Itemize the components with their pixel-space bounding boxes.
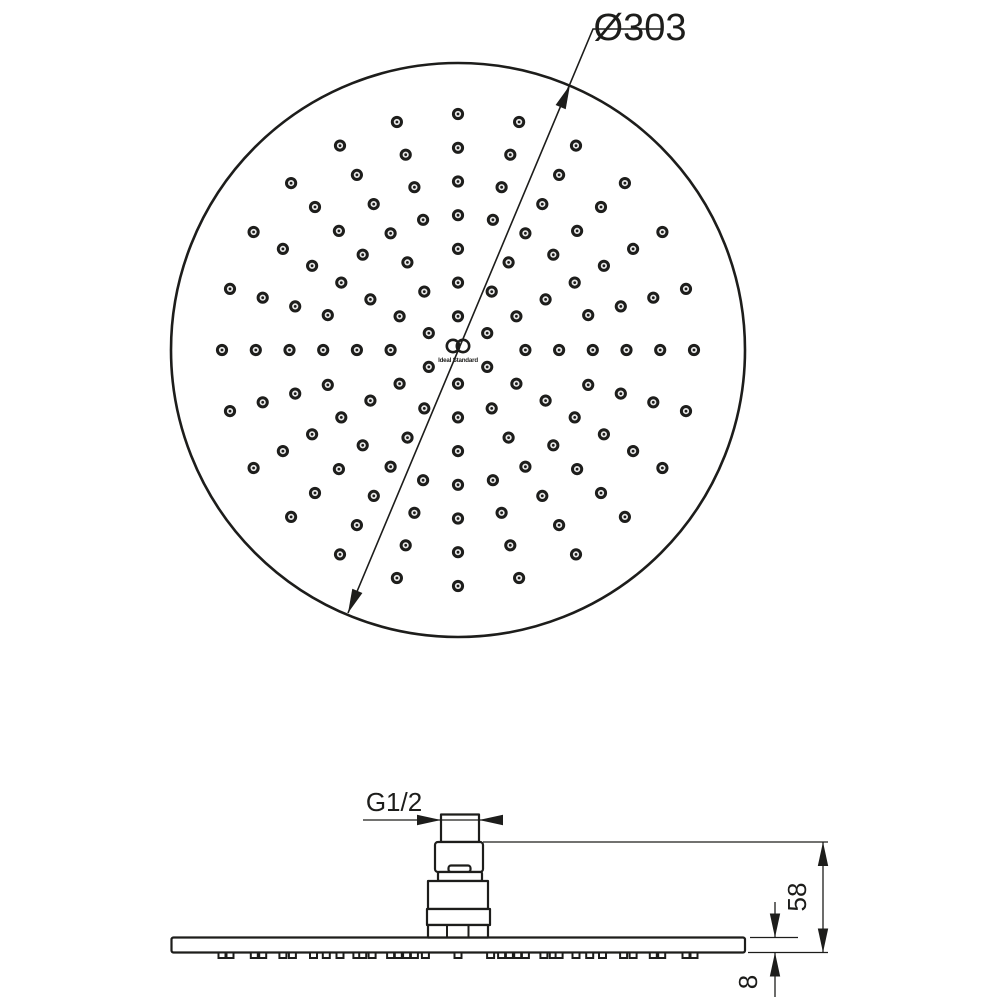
nozzle-dot-core	[457, 146, 460, 149]
thread-pipe	[441, 815, 479, 843]
nozzle-dot-core	[457, 517, 460, 520]
side-nozzle	[573, 953, 580, 959]
nozzle-dot-core	[290, 182, 293, 185]
thickness-label: 8	[733, 975, 763, 989]
nozzle-dot-core	[422, 479, 425, 482]
nozzle-dot-core	[314, 206, 317, 209]
joint-body-lower	[427, 909, 490, 925]
nozzle-dot-core	[573, 416, 576, 419]
side-nozzle	[683, 953, 690, 959]
nozzle-dot-core	[372, 495, 375, 498]
side-nozzle	[219, 953, 226, 959]
side-view: G1/2 58 8	[172, 787, 829, 997]
nozzle-dot-core	[661, 467, 664, 470]
nozzle-dot-core	[389, 465, 392, 468]
joint-base-band	[428, 925, 488, 938]
nozzle-dot-core	[587, 314, 590, 317]
nozzle-dot-core	[427, 332, 430, 335]
nozzle-dot-core	[652, 296, 655, 299]
side-nozzle	[310, 953, 317, 959]
nozzle-dot-core	[652, 401, 655, 404]
nozzle-dot-core	[632, 248, 635, 251]
nozzle-dot-core	[541, 495, 544, 498]
nozzle-dot-core	[340, 416, 343, 419]
side-nozzle	[630, 953, 637, 959]
side-nozzle	[251, 953, 258, 959]
side-nozzle	[620, 953, 627, 959]
nozzle-dot-core	[661, 231, 664, 234]
side-nozzle	[586, 953, 593, 959]
side-nozzle	[411, 953, 418, 959]
nozzle-dot-core	[369, 399, 372, 402]
nozzle-dot-core	[558, 349, 561, 352]
nozzle-dot-core	[457, 214, 460, 217]
nozzle-dot-core	[290, 516, 293, 519]
side-nozzle	[522, 953, 529, 959]
nozzle-dot-core	[457, 281, 460, 284]
nozzle-dot-core	[576, 468, 579, 471]
nozzle-dot-core	[575, 553, 578, 556]
side-nozzle	[395, 953, 402, 959]
nozzle-dot-core	[544, 298, 547, 301]
nozzle-dot-core	[254, 349, 257, 352]
side-nozzle	[487, 953, 494, 959]
nozzle-dot-core	[288, 349, 291, 352]
side-nozzle	[289, 953, 296, 959]
nozzle-dot-core	[507, 261, 510, 264]
nozzle-dot-core	[457, 551, 460, 554]
nozzle-dot-core	[423, 407, 426, 410]
nozzle-dot-core	[356, 524, 359, 527]
side-nozzle	[227, 953, 234, 959]
side-nozzle	[556, 953, 563, 959]
nozzle-dot-core	[509, 544, 512, 547]
nozzle-dot-core	[361, 444, 364, 447]
height-label: 58	[782, 883, 812, 912]
nozzle-dot-core	[685, 288, 688, 291]
nozzle-dot-core	[406, 436, 409, 439]
side-nozzle	[359, 953, 366, 959]
nozzle-dot-core	[619, 305, 622, 308]
side-nozzle	[599, 953, 606, 959]
nozzle-dot-core	[685, 410, 688, 413]
nozzle-dot-core	[490, 407, 493, 410]
nozzle-dot-core	[427, 366, 430, 369]
nozzle-dot-core	[558, 524, 561, 527]
nozzle-dot-core	[515, 382, 518, 385]
nozzle-dot-core	[603, 433, 606, 436]
nozzle-dot-core	[600, 492, 603, 495]
nozzle-dot-core	[221, 349, 224, 352]
nozzle-dot-core	[326, 384, 329, 387]
nozzle-dot-core	[524, 349, 527, 352]
nozzle-dot-core	[372, 203, 375, 206]
nozzle-dot-core	[340, 281, 343, 284]
nozzle-dot-core	[282, 450, 285, 453]
side-nozzle	[540, 953, 547, 959]
nozzle-dot-core	[252, 467, 255, 470]
side-nozzle	[337, 953, 344, 959]
nozzle-dot-core	[515, 315, 518, 318]
nozzle-dot-core	[624, 516, 627, 519]
side-nozzle	[498, 953, 505, 959]
nozzle-dot-core	[659, 349, 662, 352]
nozzle-dot-core	[356, 174, 359, 177]
nozzle-dot-core	[406, 261, 409, 264]
nozzle-dot-core	[229, 288, 232, 291]
diameter-label: Ø303	[594, 7, 687, 49]
nozzle-dot-core	[339, 553, 342, 556]
height-dimension: 58	[782, 842, 828, 953]
side-nozzle	[691, 953, 698, 959]
nozzle-dot-core	[294, 392, 297, 395]
side-nozzle	[658, 953, 665, 959]
shower-head-technical-drawing: Ideal Standard Ø303 G1/2	[0, 0, 1000, 1000]
joint-body-upper	[428, 881, 488, 909]
nozzle-dot-core	[552, 253, 555, 256]
nozzle-dot-core	[457, 450, 460, 453]
nozzle-dot-core	[423, 290, 426, 293]
nozzle-dot-core	[624, 182, 627, 185]
nozzle-dot-core	[457, 382, 460, 385]
drawing-canvas: Ideal Standard Ø303 G1/2	[0, 0, 1000, 1000]
nozzle-dot-core	[252, 231, 255, 234]
nozzle-dot-core	[398, 382, 401, 385]
side-nozzle	[387, 953, 394, 959]
nozzle-dot-core	[413, 186, 416, 189]
nozzle-dot-core	[632, 450, 635, 453]
nozzle-dot-core	[314, 492, 317, 495]
nozzle-dot-core	[490, 290, 493, 293]
nozzle-dot-core	[541, 203, 544, 206]
nozzle-dot-core	[398, 315, 401, 318]
side-nozzle-marks	[219, 953, 698, 959]
side-nozzle	[650, 953, 657, 959]
nozzle-dot-core	[389, 349, 392, 352]
nozzle-dot-core	[261, 401, 264, 404]
nozzle-dot-core	[518, 121, 521, 124]
nozzle-dot-core	[457, 180, 460, 183]
thickness-arrow-up-icon	[770, 953, 780, 977]
height-arrow-up-icon	[818, 842, 828, 866]
side-nozzle	[455, 953, 462, 959]
nozzle-dot-core	[338, 468, 341, 471]
nozzle-dot-core	[603, 264, 606, 267]
thread-arrow-right-icon	[479, 815, 503, 825]
nozzle-dot-core	[457, 483, 460, 486]
nozzle-dot-core	[544, 399, 547, 402]
nozzle-dot-core	[282, 248, 285, 251]
nozzle-dot-core	[322, 349, 325, 352]
side-nozzle	[506, 953, 513, 959]
nozzle-dot-core	[587, 384, 590, 387]
side-nozzle	[514, 953, 521, 959]
nozzle-dot-core	[558, 174, 561, 177]
nozzle-dot-core	[591, 349, 594, 352]
nozzle-dot-core	[457, 113, 460, 116]
nozzle-dot-core	[492, 479, 495, 482]
nozzle-dot-core	[396, 577, 399, 580]
thread-label: G1/2	[366, 787, 422, 817]
nozzle-dot-core	[326, 314, 329, 317]
height-arrow-down-icon	[818, 929, 828, 953]
nozzle-dot-core	[492, 218, 495, 221]
side-nozzle	[369, 953, 376, 959]
nozzle-dot-core	[500, 186, 503, 189]
nozzle-dot-core	[552, 444, 555, 447]
nozzle-dot-core	[500, 511, 503, 514]
nozzle-dot-core	[404, 153, 407, 156]
nozzle-dot-core	[524, 465, 527, 468]
nozzle-dot-core	[457, 315, 460, 318]
nozzle-dot-core	[457, 248, 460, 251]
shower-disc-profile	[172, 938, 746, 953]
nozzle-dot-core	[413, 511, 416, 514]
connector-collar	[438, 872, 482, 881]
nozzle-dot-core	[229, 410, 232, 413]
nozzle-dot-core	[693, 349, 696, 352]
nozzle-dot-core	[361, 253, 364, 256]
nozzle-dot-core	[338, 230, 341, 233]
nozzle-dot-core	[486, 332, 489, 335]
nozzle-dot-core	[457, 416, 460, 419]
nozzle-dot-core	[261, 296, 264, 299]
nozzle-dot-core	[404, 544, 407, 547]
nozzle-dot-core	[524, 232, 527, 235]
nozzle-dot-core	[457, 585, 460, 588]
thickness-arrow-down-icon	[770, 914, 780, 938]
nozzle-dot-core	[575, 144, 578, 147]
nozzle-dot-core	[573, 281, 576, 284]
side-nozzle	[259, 953, 266, 959]
nozzle-dot-core	[311, 433, 314, 436]
nozzle-dot-core	[625, 349, 628, 352]
nozzle-dot-core	[576, 230, 579, 233]
nozzle-dot-core	[294, 305, 297, 308]
nozzle-dot-core	[509, 153, 512, 156]
nozzle-dot-core	[486, 366, 489, 369]
nozzle-dot-core	[339, 144, 342, 147]
thread-dimension: G1/2	[363, 787, 503, 825]
side-nozzle	[403, 953, 410, 959]
nozzle-dot-core	[507, 436, 510, 439]
side-nozzle	[279, 953, 286, 959]
brand-label: Ideal Standard	[438, 357, 478, 364]
nozzle-dot-core	[396, 121, 399, 124]
nozzle-dot-core	[518, 577, 521, 580]
side-nozzle	[323, 953, 330, 959]
side-nozzle	[422, 953, 429, 959]
nozzle-dot-core	[389, 232, 392, 235]
nozzle-dot-core	[600, 206, 603, 209]
nozzle-dot-core	[356, 349, 359, 352]
nozzle-dot-core	[369, 298, 372, 301]
top-view: Ideal Standard Ø303	[171, 7, 745, 637]
nozzle-dot-core	[619, 392, 622, 395]
nozzle-dot-core	[311, 264, 314, 267]
nozzle-dot-core	[422, 218, 425, 221]
